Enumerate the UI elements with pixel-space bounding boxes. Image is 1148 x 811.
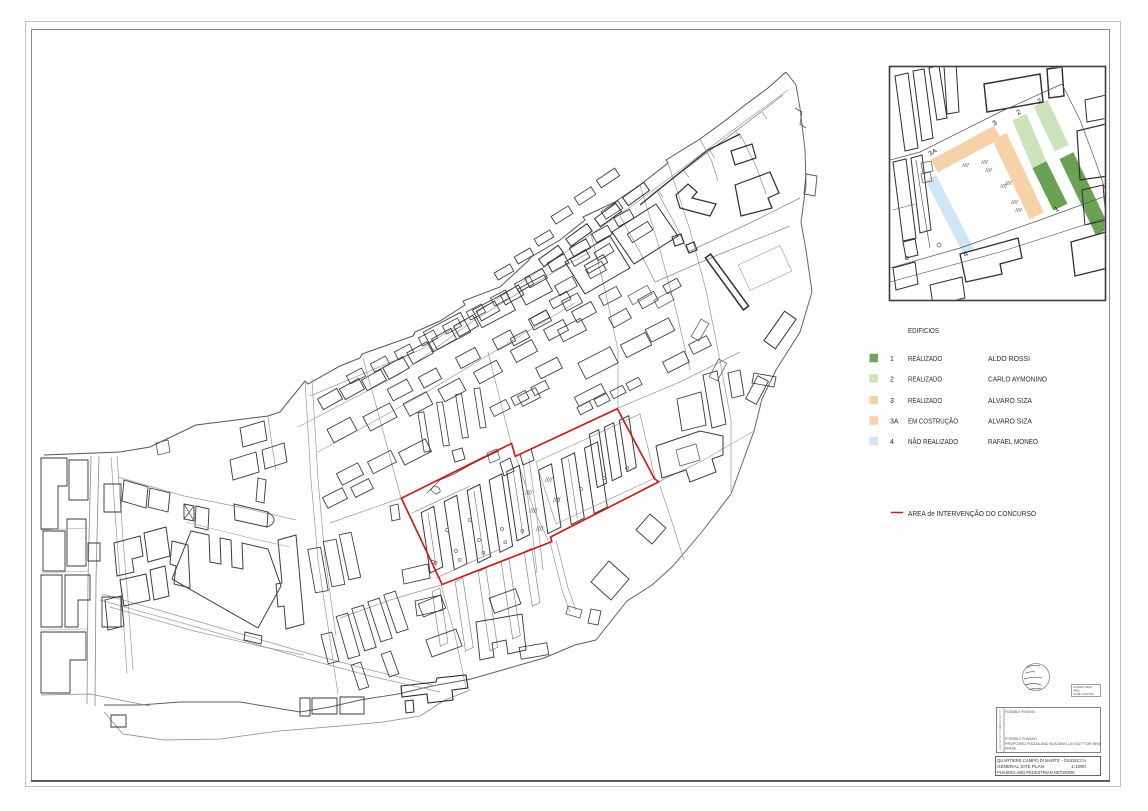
svg-text:PROPOSED PIAZZA AND BUILDING L: PROPOSED PIAZZA AND BUILDING LAYOUT FOR … <box>1005 742 1102 746</box>
svg-text:NÃO REALIZADO: NÃO REALIZADO <box>908 437 958 446</box>
svg-text:2: 2 <box>890 377 894 384</box>
svg-text:1: 1 <box>890 356 894 363</box>
svg-text:REALIZADO: REALIZADO <box>908 398 942 405</box>
svg-text:ALDO ROSSI: ALDO ROSSI <box>988 356 1030 363</box>
svg-text:3A: 3A <box>890 419 899 426</box>
svg-text:CONCURSO: CONCURSO <box>998 710 1002 728</box>
svg-text:QUARTIERE CAMPO DI MARTE - GIU: QUARTIERE CAMPO DI MARTE - GIUDECCA <box>997 758 1087 763</box>
svg-text:PHASING AND PEDESTRIAN NETWORK: PHASING AND PEDESTRIAN NETWORK <box>997 770 1076 775</box>
svg-text:CARLO AYMONINO: CARLO AYMONINO <box>988 377 1048 384</box>
svg-text:AREA de INTERVENÇÃO DO CONCURS: AREA de INTERVENÇÃO DO CONCURSO <box>908 509 1037 518</box>
svg-text:GENERAL SITE PLAN: GENERAL SITE PLAN <box>997 764 1044 769</box>
svg-text:RAFAEL MONEO: RAFAEL MONEO <box>988 439 1038 446</box>
svg-text:EDIFICIOS: EDIFICIOS <box>908 328 939 335</box>
svg-text:POSSIBLE PHASING: POSSIBLE PHASING <box>1005 737 1037 741</box>
svg-text:REALIZADO: REALIZADO <box>908 377 942 384</box>
svg-text:ALVARO SIZA: ALVARO SIZA <box>988 398 1032 405</box>
svg-text:1:1000: 1:1000 <box>1071 764 1086 769</box>
svg-text:JOSE NANTES: JOSE NANTES <box>1073 692 1094 696</box>
svg-text:ALVARO SIZA: ALVARO SIZA <box>988 419 1032 426</box>
svg-text:4: 4 <box>890 439 894 446</box>
svg-text:PHASE: PHASE <box>1005 747 1017 751</box>
svg-text:POSSIBLE PHASING: POSSIBLE PHASING <box>1005 710 1035 714</box>
svg-text:REALIZADO: REALIZADO <box>908 356 942 363</box>
svg-text:3: 3 <box>890 398 894 405</box>
svg-text:EM COSTRUÇÃO: EM COSTRUÇÃO <box>908 417 958 426</box>
